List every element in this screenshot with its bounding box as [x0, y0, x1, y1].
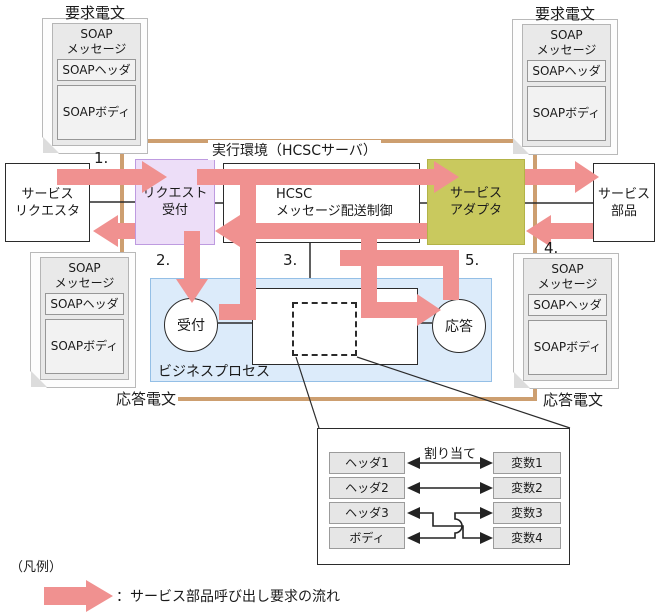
bp-reception-label: 受付 [177, 315, 205, 335]
step-4-label: 4. [544, 239, 558, 257]
soap-message-title: SOAP [41, 261, 128, 276]
soap-header-box: SOAPヘッダ [527, 60, 606, 82]
soap-header-box: SOAPヘッダ [45, 293, 124, 315]
mapping-var4-cell: 変数4 [493, 527, 561, 549]
mapping-activity-dashed-box [292, 302, 357, 356]
bp-reply-label: 応答 [445, 316, 473, 336]
soap-message-title: SOAP [523, 28, 610, 43]
mapping-var3-cell: 変数3 [493, 502, 561, 524]
request-reception-box: リクエスト 受付 [135, 159, 215, 245]
service-requester-label-1: サービス [21, 186, 73, 203]
service-requester-box: サービス リクエスタ [5, 163, 90, 242]
service-parts-label-2: 部品 [611, 203, 637, 220]
mapping-title: 割り当て [400, 443, 500, 462]
hcsc-message-delivery-box: HCSC メッセージ配送制御 [223, 163, 420, 243]
step-1-label: 1. [94, 149, 108, 167]
service-adapter-label-1: サービス [450, 185, 502, 202]
legend-arrowhead [86, 580, 113, 612]
soap-body-box: SOAPボディ [527, 86, 606, 141]
soap-header-box: SOAPヘッダ [57, 59, 136, 81]
service-adapter-label-2: アダプタ [450, 202, 502, 219]
soap-body-box: SOAPボディ [45, 319, 124, 374]
execution-environment-label: 実行環境（HCSCサーバ） [208, 140, 381, 160]
step-2-label: 2. [156, 251, 170, 269]
mapping-var2-cell: 変数2 [493, 477, 561, 499]
mapping-var1-cell: 変数1 [493, 452, 561, 474]
response-message-label-bottom-right: 応答電文 [541, 389, 605, 410]
soap-message-title2: メッセージ [41, 276, 128, 291]
request-message-label-top-left: 要求電文 [42, 2, 148, 23]
service-parts-box: サービス 部品 [593, 163, 655, 242]
soap-body-box: SOAPボディ [57, 85, 136, 140]
soap-message-panel: SOAP メッセージ SOAPヘッダ SOAPボディ [40, 257, 129, 380]
soap-message-panel: SOAP メッセージ SOAPヘッダ SOAPボディ [523, 258, 612, 381]
hcsc-label-1: HCSC [276, 186, 312, 203]
request-message-label-top-right: 要求電文 [512, 3, 618, 24]
legend-title: （凡例） [10, 556, 62, 575]
soap-message-title: SOAP [524, 262, 611, 277]
arrowhead-return-into-requester [93, 215, 118, 247]
hcsc-label-2: メッセージ配送制御 [276, 203, 393, 220]
soap-message-title2: メッセージ [524, 277, 611, 292]
soap-message-title2: メッセージ [523, 43, 610, 58]
request-reception-label-1: リクエスト [142, 185, 207, 202]
soap-header-box: SOAPヘッダ [528, 294, 607, 316]
service-adapter-box: サービス アダプタ [427, 159, 525, 245]
soap-document-top-left: SOAP メッセージ SOAPヘッダ SOAPボディ [42, 18, 148, 154]
soap-message-panel: SOAP メッセージ SOAPヘッダ SOAPボディ [522, 24, 611, 147]
bp-reception-circle: 受付 [164, 298, 218, 352]
soap-document-bottom-right: SOAP メッセージ SOAPヘッダ SOAPボディ [513, 253, 619, 389]
response-message-label-bottom-left: 応答電文 [114, 388, 178, 409]
soap-message-title2: メッセージ [53, 42, 140, 57]
service-parts-label-1: サービス [598, 186, 650, 203]
soap-document-top-right: SOAP メッセージ SOAPヘッダ SOAPボディ [512, 19, 618, 155]
step-5-label: 5. [465, 251, 479, 269]
legend-description: ：サービス部品呼び出し要求の流れ [116, 586, 340, 606]
soap-body-box: SOAPボディ [528, 320, 607, 375]
mapping-header2-cell: ヘッダ2 [329, 477, 405, 499]
mapping-header3-cell: ヘッダ3 [329, 502, 405, 524]
business-process-label: ビジネスプロセス [158, 361, 270, 381]
soap-document-bottom-left: SOAP メッセージ SOAPヘッダ SOAPボディ [30, 252, 136, 388]
service-requester-label-2: リクエスタ [15, 203, 80, 220]
step-3-label: 3. [283, 251, 297, 269]
mapping-header1-cell: ヘッダ1 [329, 452, 405, 474]
bp-reply-circle: 応答 [432, 299, 486, 353]
soap-message-panel: SOAP メッセージ SOAPヘッダ SOAPボディ [52, 23, 141, 146]
request-reception-label-2: 受付 [162, 202, 188, 219]
diagram-stage: 要求電文 SOAP メッセージ SOAPヘッダ SOAPボディ 要求電文 SOA… [0, 0, 661, 615]
mapping-body-cell: ボディ [329, 527, 405, 549]
soap-message-title: SOAP [53, 27, 140, 42]
